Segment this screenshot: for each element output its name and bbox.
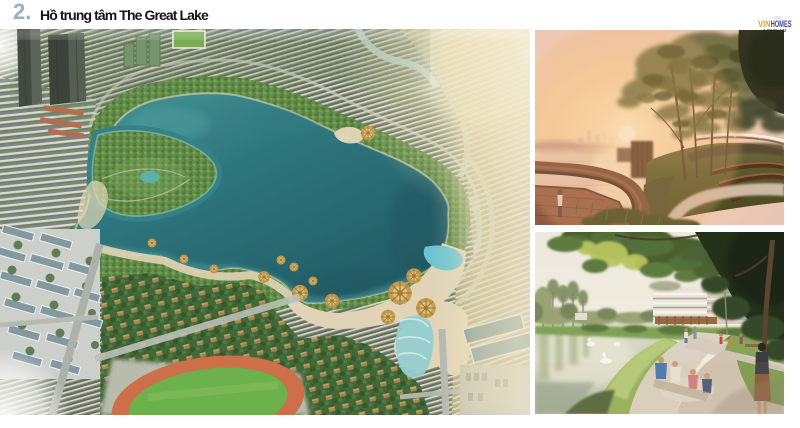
- svg-text:HOMES: HOMES: [771, 19, 792, 29]
- svg-text:VIN: VIN: [758, 19, 771, 29]
